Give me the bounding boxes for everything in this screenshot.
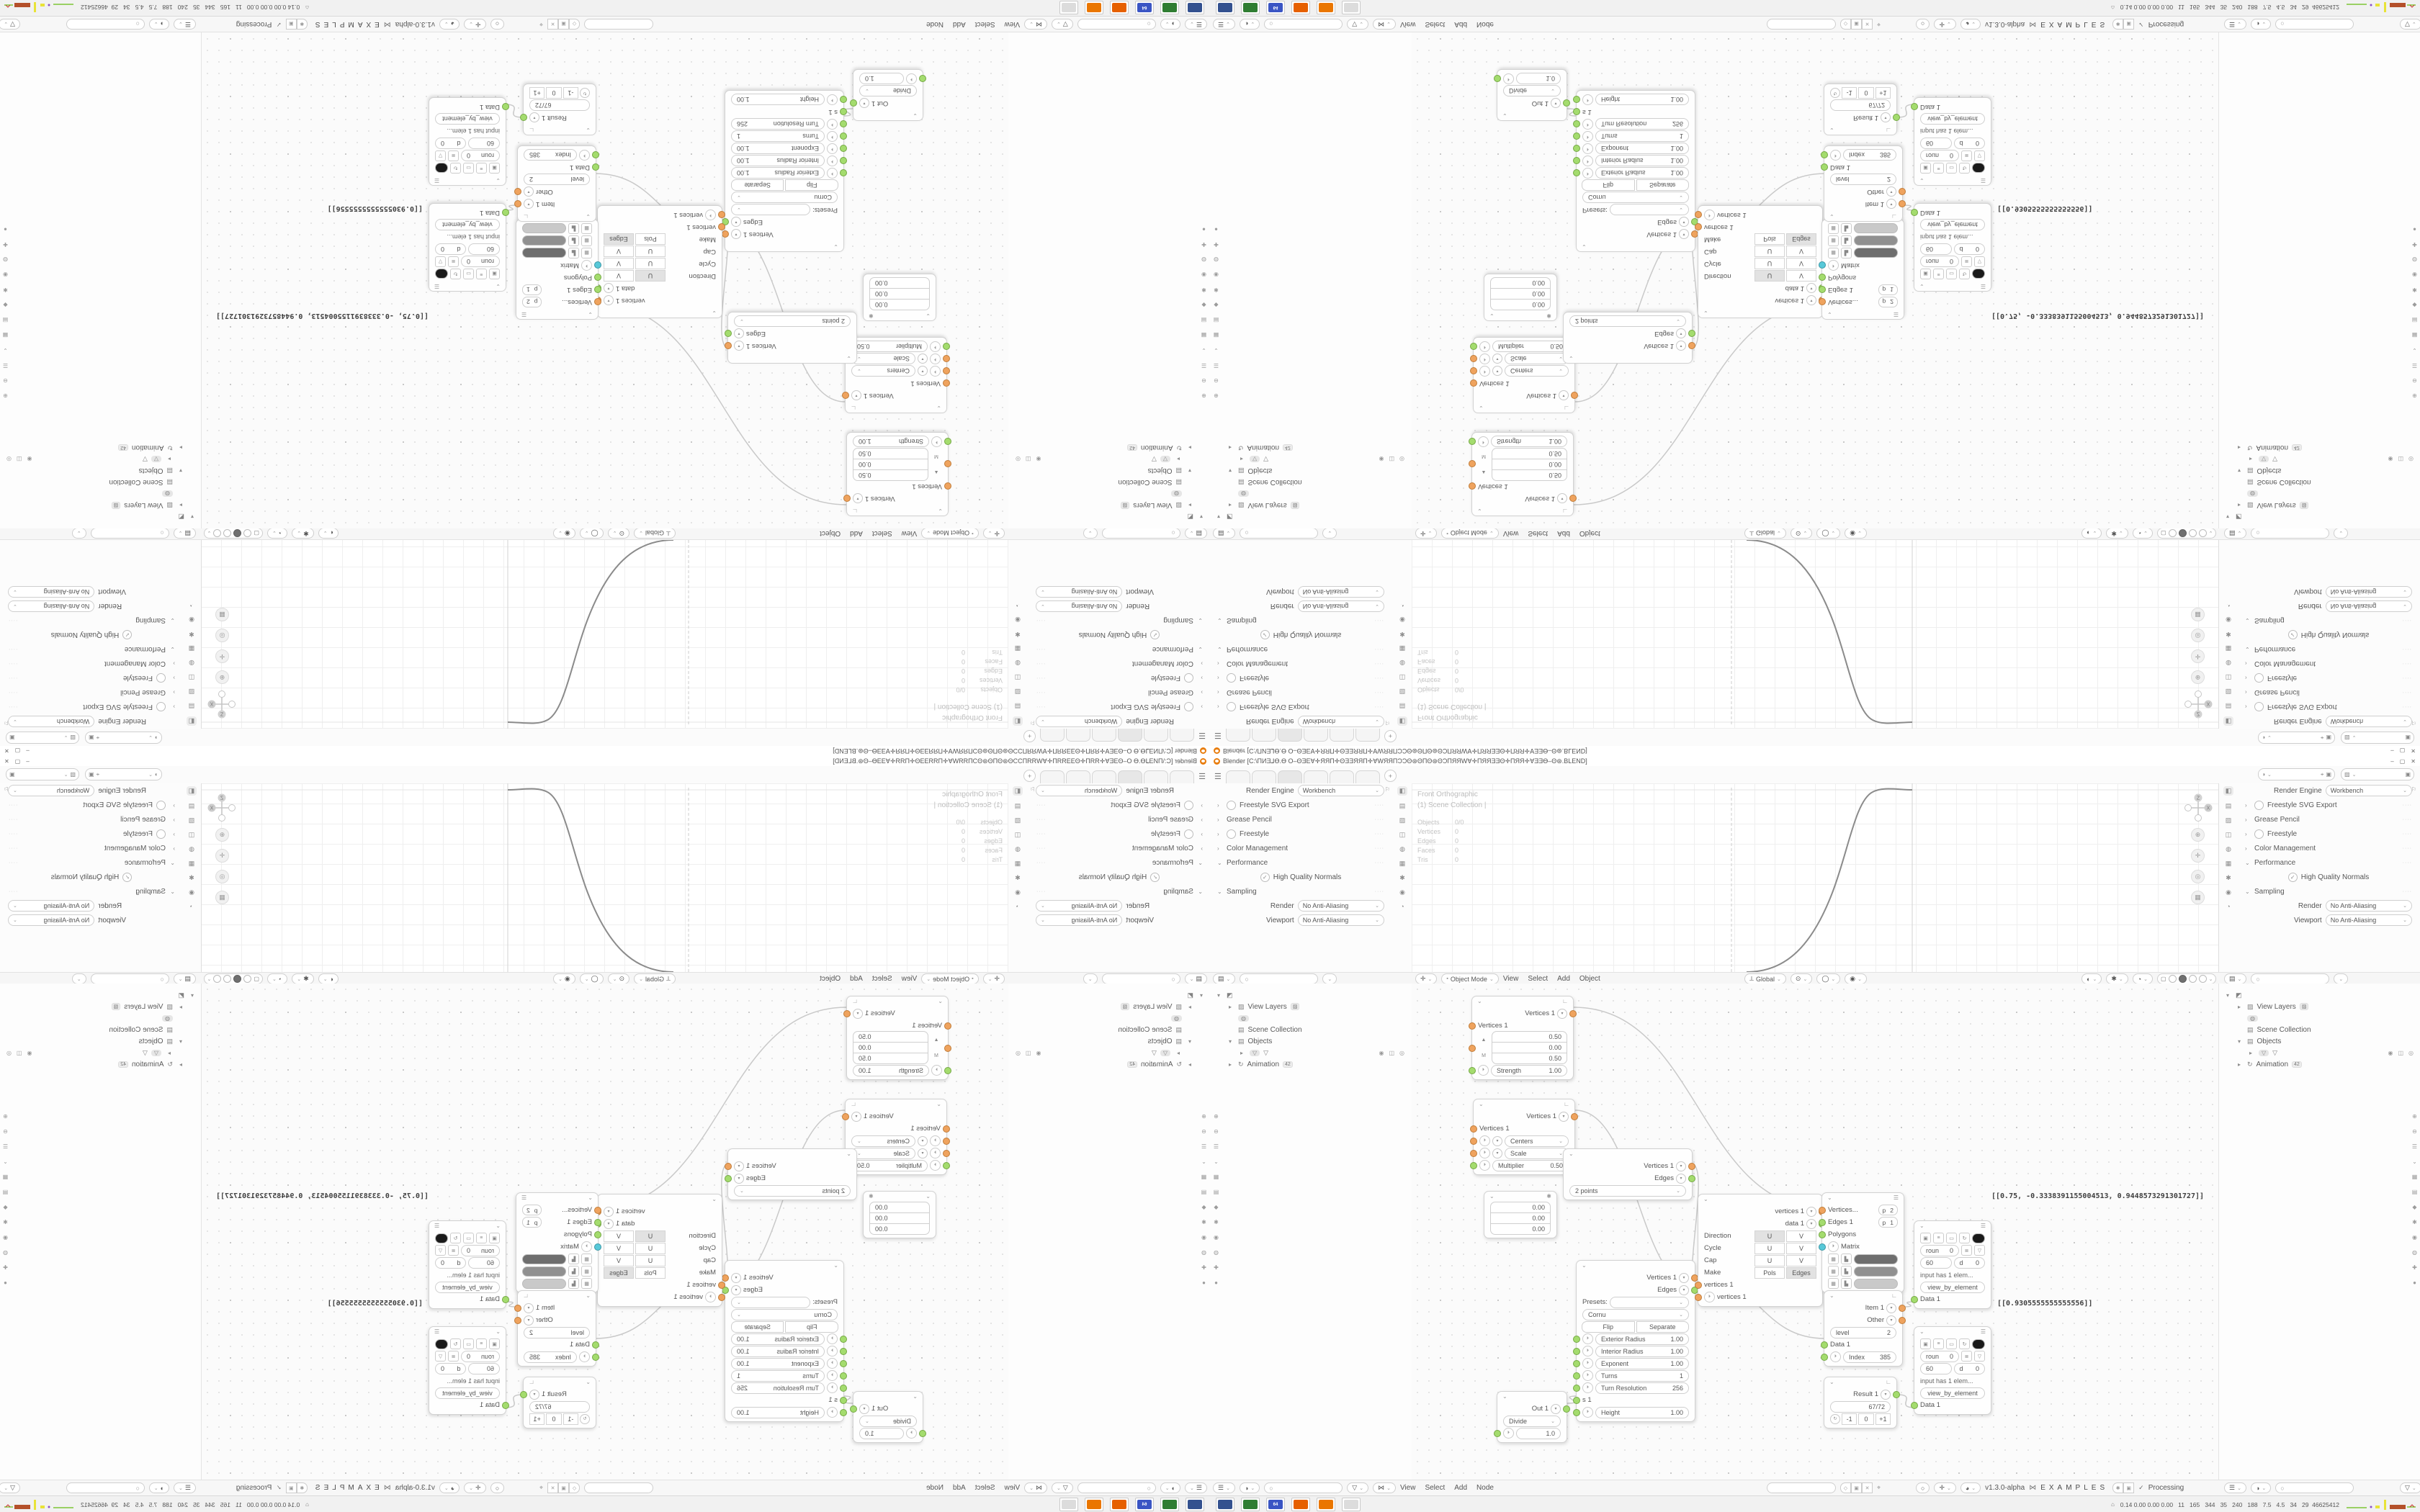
socket-menu-button[interactable]: ▾: [734, 1161, 744, 1171]
socket-options-button[interactable]: ⏵: [1582, 143, 1593, 154]
node-socket-vertices[interactable]: [1569, 495, 1577, 503]
side-tab-icon[interactable]: ●: [1202, 1279, 1206, 1286]
maximize-button[interactable]: ▢: [2400, 748, 2406, 755]
option-icon[interactable]: ▽: [1974, 256, 1985, 267]
node-socket-data[interactable]: [1573, 170, 1580, 177]
properties-search-input[interactable]: ○: [1102, 528, 1180, 539]
value-field[interactable]: 60: [1920, 1363, 1952, 1374]
node-socket-data[interactable]: [1470, 343, 1477, 351]
checkbox[interactable]: [1227, 829, 1236, 839]
viewport-3d[interactable]: Front Orthographic(1) Scene Collection |…: [202, 783, 1008, 972]
socket-options-button[interactable]: ⏵: [931, 436, 942, 447]
side-tab-icon[interactable]: ◍: [1201, 1249, 1206, 1256]
zoom-icon[interactable]: ⊕: [215, 670, 229, 684]
side-tab-icon[interactable]: ✚: [2412, 1264, 2417, 1271]
node-header[interactable]: ⌄∟: [518, 1291, 596, 1302]
outliner-id-filter-button[interactable]: ◑⌄: [1240, 19, 1260, 30]
pin-icon[interactable]: ⚐: [1030, 786, 1035, 793]
outliner-id-filter-button[interactable]: ◑⌄: [1160, 19, 1180, 30]
pivot-point-dropdown[interactable]: ⊙⌄: [608, 528, 629, 539]
vector-value-field[interactable]: 0.00: [869, 1202, 930, 1213]
scene-selector[interactable]: ◑⌄ ⌖ ▣: [2258, 768, 2335, 780]
value-field[interactable]: Interior Radius1.00: [1595, 1346, 1689, 1357]
copy-button[interactable]: ▣: [1851, 19, 1862, 30]
viewport-menu-view[interactable]: View: [1503, 529, 1519, 537]
value-field[interactable]: 67/72: [529, 100, 590, 112]
node-socket-data[interactable]: [1821, 164, 1828, 171]
node-socket-data[interactable]: [1819, 1219, 1826, 1226]
mode-dropdown[interactable]: ▪Object Mode⌄: [1441, 973, 1498, 984]
properties-panel-header[interactable]: ›Grease Pencil····: [1210, 812, 1391, 827]
display-toggle-icon[interactable]: ▣: [1920, 1233, 1931, 1243]
node-socket-data[interactable]: [1469, 1067, 1476, 1074]
collapse-chevron-icon[interactable]: ⌄: [833, 1262, 838, 1272]
pin-icon[interactable]: ⌖: [2321, 734, 2324, 742]
shading-material-button[interactable]: [223, 975, 231, 983]
properties-tab-icon[interactable]: ◧: [187, 786, 197, 796]
side-tab-icon[interactable]: ☰: [2412, 362, 2417, 369]
side-tab-icon[interactable]: ⌄: [1214, 1158, 1219, 1165]
workspace-tab[interactable]: [1170, 729, 1194, 742]
rounding-field[interactable]: roun0: [1920, 1245, 1959, 1256]
pin-icon[interactable]: ⌖: [1877, 20, 1881, 28]
side-tab-icon[interactable]: ⌄: [1201, 347, 1206, 354]
dropdown-field[interactable]: ⌄: [731, 204, 810, 216]
dropdown-field[interactable]: Cornu⌄: [1582, 1309, 1689, 1320]
socket-options-button[interactable]: ⏵: [705, 210, 716, 220]
table-cell[interactable]: Pols: [1754, 234, 1785, 246]
vector-fields[interactable]: 0.500.000.50: [853, 1032, 928, 1064]
toggle-grid-icon[interactable]: ▦: [215, 608, 229, 621]
socket-options-button[interactable]: ⏵: [581, 260, 592, 271]
collapse-chevron-icon[interactable]: ⌄: [1569, 1151, 1574, 1160]
math-divide-node[interactable]: ⌄Out 1▾Divide⌄⏵1.0: [853, 69, 923, 121]
outliner-row[interactable]: ▸▨View Layers▨: [2219, 500, 2420, 511]
outliner-row[interactable]: ▸▽▽◉◫◎: [1210, 454, 1412, 465]
socket-menu-button[interactable]: ▾: [1806, 284, 1816, 294]
properties-tab-icon[interactable]: ✱: [2226, 874, 2231, 882]
collapse-chevron-icon[interactable]: ⌄: [833, 240, 838, 250]
side-tab-icon[interactable]: ⌄: [3, 347, 8, 354]
collapse-chevron-icon[interactable]: ⌄: [1829, 124, 1834, 133]
uv-connection-node[interactable]: ⌄vertices 1▾data 1▾DirectionUVCycleUVCap…: [597, 205, 722, 318]
outliner-row[interactable]: ◍: [0, 488, 201, 500]
checkbox[interactable]: ✓: [122, 631, 132, 640]
side-tab-icon[interactable]: ●: [4, 226, 7, 233]
collapse-chevron-icon[interactable]: ⌄: [1919, 1223, 1924, 1232]
properties-tab-icon[interactable]: ◔: [1400, 602, 1404, 609]
node-editor-menu-node[interactable]: Node: [1476, 1484, 1494, 1492]
node-socket-vertices[interactable]: [1899, 201, 1906, 208]
node-socket-data[interactable]: [1494, 1430, 1501, 1437]
collapse-chevron-icon[interactable]: ⌄: [1502, 109, 1507, 119]
node-socket-data[interactable]: [1573, 1348, 1580, 1355]
socket-menu-button[interactable]: ▾: [1551, 99, 1561, 109]
node-editor-menu-select[interactable]: Select: [975, 1484, 995, 1492]
node-editor-menu-add[interactable]: Add: [1454, 1484, 1467, 1492]
table-cell[interactable]: U: [635, 246, 665, 258]
view-layer-name-field[interactable]: [2358, 734, 2403, 742]
outliner-row[interactable]: ◍: [2219, 488, 2420, 500]
value-field[interactable]: Strength1.00: [853, 1065, 929, 1076]
checkbox[interactable]: [1184, 801, 1193, 810]
properties-tab-icon[interactable]: ◉: [2226, 888, 2231, 896]
vertices-scale-node[interactable]: ⌄∟Vertices 1▾Vertices 1⏵▾Centers⌄⏵▾Scale…: [845, 1099, 947, 1175]
table-cell[interactable]: U: [635, 271, 665, 282]
viewport-3d[interactable]: Front Orthographic(1) Scene Collection |…: [202, 540, 1008, 729]
viewport-menu-add[interactable]: Add: [850, 975, 863, 983]
socket-menu-button[interactable]: ▾: [1886, 1315, 1896, 1326]
side-tab-icon[interactable]: ✱: [3, 287, 8, 293]
node-header[interactable]: ⌄: [728, 352, 856, 363]
side-tab-icon[interactable]: ▦: [1201, 1174, 1207, 1180]
table-cell[interactable]: U: [1754, 258, 1785, 270]
property-dropdown[interactable]: Workbench⌄: [8, 716, 94, 727]
node-socket-data[interactable]: [725, 1175, 732, 1182]
option-icon[interactable]: ▽: [435, 1245, 446, 1256]
main-menu-icon[interactable]: ☰: [1198, 772, 1206, 781]
outliner-row[interactable]: ▾▤Objects: [0, 465, 201, 477]
side-tab-icon[interactable]: ☰: [1214, 362, 1219, 369]
node-socket-data[interactable]: [1573, 96, 1580, 104]
properties-tab-icon[interactable]: ▦: [1399, 860, 1406, 868]
main-menu-icon[interactable]: ☰: [1214, 772, 1222, 781]
text-color-swatch[interactable]: [1972, 163, 1985, 174]
properties-panel-header[interactable]: ›Freestyle····: [1, 827, 182, 841]
properties-tab-icon[interactable]: ◍: [189, 659, 194, 667]
node-editor-menu-view[interactable]: View: [1005, 1484, 1021, 1492]
viewport-menu-object[interactable]: Object: [1579, 529, 1600, 537]
dropdown-field[interactable]: Cornu⌄: [731, 1309, 838, 1320]
checkbox[interactable]: [1184, 703, 1193, 712]
side-tab-icon[interactable]: ▤: [2412, 1189, 2418, 1195]
outliner-row[interactable]: ▤Scene Collection: [2219, 477, 2420, 488]
socket-menu-button[interactable]: ▾: [1559, 391, 1569, 401]
collapse-chevron-icon[interactable]: ⌄: [1829, 1292, 1834, 1302]
vector-fields[interactable]: 0.500.000.50: [1492, 448, 1567, 480]
outliner-filter-button[interactable]: ☰⌄: [1213, 19, 1235, 30]
outliner-row[interactable]: ▸▽▽◉◫◎: [0, 454, 201, 465]
node-editor-menu-view[interactable]: View: [1005, 20, 1021, 28]
outliner-row[interactable]: ▸▽▽◉◫◎: [1008, 454, 1210, 465]
property-dropdown[interactable]: No Anti-Aliasing⌄: [2326, 914, 2412, 926]
stethoscope-node-a[interactable]: ⌄☰▣≡▭↻roun0≣▽60d0input has 1 elem...view…: [1914, 1220, 1991, 1309]
property-dropdown[interactable]: No Anti-Aliasing⌄: [8, 900, 94, 912]
properties-tab-icon[interactable]: ▦: [189, 860, 195, 868]
value-field[interactable]: d0: [435, 244, 467, 256]
properties-panel-header[interactable]: ›Color Management····: [1028, 657, 1210, 671]
dropdown-field[interactable]: Scale⌄: [851, 1148, 915, 1159]
view-layer-selector[interactable]: ▨⌄ ▣: [2341, 732, 2414, 744]
node-socket-vertices[interactable]: [1469, 461, 1476, 468]
side-tab-icon[interactable]: ⊖: [1201, 1128, 1206, 1135]
viewport-menu-add[interactable]: Add: [1557, 529, 1570, 537]
socket-options-button[interactable]: ⏵: [1479, 354, 1490, 364]
properties-panel-header[interactable]: ⌄Performance····: [1, 855, 182, 870]
outliner-row[interactable]: ▾▤Objects: [2219, 465, 2420, 477]
display-toggle-icon[interactable]: ▦: [1828, 235, 1839, 246]
update-tree-button[interactable]: ✱: [2112, 1482, 2123, 1493]
table-cell[interactable]: V: [604, 271, 634, 282]
socket-menu-button[interactable]: ▾: [1679, 1273, 1689, 1283]
outliner-row[interactable]: ▾◩: [1008, 989, 1210, 1001]
pin-icon[interactable]: ⌖: [2321, 771, 2324, 778]
socket-options-button[interactable]: ⏵: [1704, 1292, 1715, 1302]
node-editor[interactable]: ⌄∟Vertices 1▾Vertices 1▲M0.500.000.50⏵St…: [202, 984, 1008, 1480]
value-field[interactable]: Index385: [524, 1351, 577, 1363]
collapse-chevron-icon[interactable]: ⌄: [1703, 307, 1708, 316]
outliner-row[interactable]: ▸↻Animation42: [1210, 442, 1412, 454]
properties-panel-header[interactable]: ›Color Management····: [1, 841, 182, 855]
node-header[interactable]: ⌄∟: [524, 1377, 596, 1388]
disable-render-icon[interactable]: ◎: [1399, 456, 1404, 463]
node-header[interactable]: ⌄∟: [846, 1099, 946, 1110]
show-overlays-button[interactable]: ✱⌄: [292, 528, 313, 539]
node-socket-vertices[interactable]: [943, 1150, 950, 1157]
socket-tag[interactable]: p1: [522, 1217, 542, 1228]
counter-button[interactable]: 0: [546, 1413, 561, 1425]
properties-tab-icon[interactable]: ◧: [2223, 716, 2234, 726]
outliner-search-input[interactable]: ○: [1264, 1482, 1343, 1493]
option-icon[interactable]: ▽: [435, 1351, 446, 1362]
value-field[interactable]: 1.0: [1516, 73, 1561, 85]
socket-options-button[interactable]: ⏵: [1582, 1370, 1593, 1381]
node-header[interactable]: ⌄☰: [1822, 308, 1904, 319]
vector-value-field[interactable]: 0.00: [853, 459, 928, 470]
node-socket-data[interactable]: [1573, 1372, 1580, 1380]
property-dropdown[interactable]: No Anti-Aliasing⌄: [1036, 600, 1122, 612]
outliner-row[interactable]: ▤Scene Collection: [0, 477, 201, 488]
disable-render-icon[interactable]: ◎: [1016, 1050, 1021, 1056]
collapse-chevron-icon[interactable]: ⌄: [1489, 1193, 1494, 1202]
vector-input-node[interactable]: ⌄✱0.000.000.00: [863, 1191, 936, 1238]
properties-options-button[interactable]: ⌄: [72, 528, 86, 539]
checkbox[interactable]: [156, 829, 166, 839]
outliner-row[interactable]: ▾▤Objects: [0, 1035, 201, 1047]
node-socket-data[interactable]: [1573, 145, 1580, 153]
node-socket-data[interactable]: [1573, 133, 1580, 140]
node-socket-vertices[interactable]: [944, 483, 951, 490]
workspace-tab[interactable]: [1278, 770, 1302, 783]
node-socket-data[interactable]: [840, 145, 847, 153]
outliner-row[interactable]: ▤Scene Collection: [1210, 1024, 1412, 1035]
socket-menu-button[interactable]: ▾: [1679, 1285, 1689, 1295]
mode-button[interactable]: ▾: [1492, 1148, 1502, 1158]
properties-tab-icon[interactable]: ▤: [1399, 702, 1406, 710]
socket-menu-button[interactable]: ▾: [734, 1174, 744, 1184]
workspace-tab[interactable]: [1040, 729, 1065, 742]
properties-panel-header[interactable]: ⌄Performance····: [2238, 642, 2419, 657]
side-tab-icon[interactable]: ▦: [1214, 1174, 1219, 1180]
socket-menu-button[interactable]: ▾: [731, 217, 741, 228]
checkbox[interactable]: [2254, 674, 2264, 683]
filter-funnel-icon[interactable]: ▽: [1160, 1050, 1170, 1056]
properties-tab-icon[interactable]: ◉: [189, 888, 194, 896]
display-toggle-icon[interactable]: ▭: [463, 269, 474, 279]
value-field[interactable]: d0: [435, 138, 467, 150]
vector-value-field[interactable]: 0.50: [1492, 448, 1567, 459]
properties-tab-icon[interactable]: ▦: [189, 644, 195, 652]
option-icon[interactable]: ≣: [1961, 1351, 1972, 1362]
side-tab-icon[interactable]: ⊖: [3, 377, 8, 384]
collapse-chevron-icon[interactable]: ⌄: [1703, 1196, 1708, 1205]
socket-options-button[interactable]: ⏵: [705, 1292, 716, 1302]
value-field[interactable]: Index385: [524, 150, 577, 161]
show-overlays-button[interactable]: ✱⌄: [292, 973, 313, 984]
properties-tab-icon[interactable]: ✱: [1015, 874, 1021, 882]
vertices-noise-node[interactable]: ⌄∟Vertices 1▾Vertices 1▲M0.500.000.50⏵St…: [846, 996, 949, 1080]
node-socket-vertices[interactable]: [1469, 1022, 1476, 1030]
loop-icon[interactable]: ↻: [1830, 1414, 1840, 1424]
node-socket-vertices[interactable]: [842, 1113, 849, 1120]
value-field[interactable]: Multiplier0.50: [851, 1160, 928, 1171]
shading-wireframe-button[interactable]: [243, 529, 251, 537]
properties-options-button[interactable]: ⌄: [1322, 528, 1337, 539]
socket-menu-button[interactable]: ▾: [1676, 329, 1686, 339]
pin-icon[interactable]: ⚐: [2411, 786, 2416, 793]
socket-menu-button[interactable]: ▾: [1676, 341, 1686, 351]
node-socket-vertices[interactable]: [725, 1163, 732, 1170]
socket-menu-button[interactable]: ▾: [1557, 494, 1567, 504]
hide-eye-icon[interactable]: ◉: [2388, 1050, 2393, 1056]
option-icon[interactable]: ≣: [1961, 1245, 1972, 1256]
socket-options-button[interactable]: ⏵: [1582, 1407, 1593, 1418]
checkbox[interactable]: [1227, 801, 1236, 810]
socket-menu-button[interactable]: ▾: [734, 329, 744, 339]
socket-menu-button[interactable]: ▾: [1679, 217, 1689, 228]
properties-panel-header[interactable]: ›Freestyle····: [1028, 671, 1210, 685]
node-header[interactable]: ⌄✱: [1484, 1192, 1556, 1202]
color-swatch[interactable]: [522, 236, 566, 246]
outliner-row[interactable]: ▾◩: [1210, 989, 1412, 1001]
outliner-row[interactable]: ▸▽▽◉◫◎: [1210, 1047, 1412, 1058]
color-swatch[interactable]: [522, 1279, 566, 1289]
display-toggle-icon[interactable]: ↻: [1959, 1338, 1970, 1349]
side-tab-icon[interactable]: ✱: [1214, 1219, 1219, 1225]
display-toggle-icon[interactable]: ▦: [1828, 1266, 1839, 1277]
toggle-option[interactable]: Separate: [1636, 180, 1690, 192]
display-toggle-icon[interactable]: ▣: [1920, 1338, 1931, 1349]
display-toggle-icon[interactable]: ▙: [568, 1254, 579, 1264]
blender-app-icon[interactable]: [1317, 1, 1335, 14]
dropdown-field[interactable]: Scale⌄: [851, 354, 915, 365]
value-field[interactable]: Exterior Radius1.00: [1595, 1333, 1689, 1345]
collapse-chevron-icon[interactable]: ⌄: [496, 174, 501, 184]
display-toggle-icon[interactable]: ▦: [1828, 1254, 1839, 1264]
properties-filter-button[interactable]: ▤⌄: [174, 973, 196, 984]
side-tab-icon[interactable]: ⊖: [1201, 377, 1206, 384]
close-button[interactable]: ✕: [4, 758, 9, 765]
node-header[interactable]: ⌄: [1497, 1392, 1567, 1403]
vector-fields[interactable]: 0.500.000.50: [853, 448, 928, 480]
collapse-chevron-icon[interactable]: ⌄: [712, 307, 717, 316]
overlay-dropdown[interactable]: ◕⌄: [1960, 19, 1981, 30]
node-socket-data[interactable]: [840, 1409, 847, 1416]
node-socket-vertices[interactable]: [514, 1305, 521, 1312]
side-tab-icon[interactable]: ◍: [1214, 1249, 1219, 1256]
socket-options-button[interactable]: ⏵: [1503, 73, 1514, 84]
workspace-tab[interactable]: [1092, 770, 1116, 783]
side-tab-icon[interactable]: ✱: [2412, 1219, 2417, 1225]
side-tab-icon[interactable]: ◆: [1201, 302, 1206, 308]
outliner-row[interactable]: ▾◩: [1210, 511, 1412, 523]
socket-options-button[interactable]: ⏵: [827, 143, 838, 154]
node-socket-data[interactable]: [840, 1385, 847, 1392]
property-dropdown[interactable]: No Anti-Aliasing⌄: [8, 914, 94, 926]
mode-dropdown[interactable]: ▪Object Mode⌄: [921, 528, 978, 539]
properties-tab-icon[interactable]: ◧: [2223, 786, 2234, 796]
color-swatch[interactable]: [522, 248, 566, 258]
collapse-chevron-icon[interactable]: ⌄: [846, 352, 851, 361]
toggle-option[interactable]: Separate: [731, 180, 784, 192]
value-field[interactable]: Exterior Radius1.00: [731, 1333, 825, 1345]
counter-node[interactable]: ⌄∟Result 1▾67/72↻-10+1: [1824, 1377, 1897, 1428]
notepad-icon[interactable]: [1059, 1, 1078, 14]
outliner-row[interactable]: ▤Scene Collection: [1210, 477, 1412, 488]
unlink-button[interactable]: ✕: [1862, 1482, 1873, 1493]
socket-menu-button[interactable]: ▾: [529, 1390, 539, 1400]
workspace-tab[interactable]: [1144, 729, 1168, 742]
outliner-row[interactable]: ▾◩: [2219, 511, 2420, 523]
side-tab-icon[interactable]: ✚: [1201, 241, 1206, 248]
pin-icon[interactable]: ⌖: [97, 771, 100, 778]
side-tab-icon[interactable]: ◆: [2412, 1204, 2416, 1210]
side-tab-icon[interactable]: ▤: [1201, 1189, 1207, 1195]
node-socket-data[interactable]: [840, 170, 847, 177]
maximize-button[interactable]: ▢: [15, 758, 21, 765]
node-header[interactable]: ⌄∟: [1472, 996, 1573, 1007]
add-workspace-button[interactable]: +: [1023, 770, 1036, 782]
node-socket-vertices[interactable]: [843, 495, 851, 503]
node-socket-vertices[interactable]: [1688, 343, 1695, 350]
value-field[interactable]: 60: [469, 138, 501, 150]
checkbox[interactable]: [1227, 674, 1236, 683]
node-socket-vertices[interactable]: [1695, 224, 1702, 231]
value-field[interactable]: Turns1: [1595, 1370, 1689, 1382]
color-swatch[interactable]: [1854, 236, 1898, 246]
properties-tab-icon[interactable]: ◔: [2226, 602, 2230, 609]
view-layer-selector[interactable]: ▨⌄ ▣: [6, 768, 79, 780]
socket-options-button[interactable]: ⏵: [1582, 119, 1593, 130]
file-manager-icon[interactable]: [1186, 1, 1204, 14]
pin-icon[interactable]: ⚐: [4, 719, 9, 726]
viewport-3d[interactable]: Front Orthographic(1) Scene Collection |…: [1412, 783, 2218, 972]
node-socket-vertices[interactable]: [1470, 368, 1477, 375]
disable-render-icon[interactable]: ◎: [6, 456, 12, 463]
socket-options-button[interactable]: ⏵: [1582, 1346, 1593, 1356]
properties-tab-icon[interactable]: ◉: [1399, 616, 1405, 624]
collapse-chevron-icon[interactable]: ⌄: [1479, 1101, 1484, 1110]
node-socket-vertices[interactable]: [944, 1022, 951, 1030]
scene-selector[interactable]: ◑⌄ ⌖ ▣: [85, 768, 162, 780]
properties-panel-header[interactable]: ⌄Performance····: [1, 642, 182, 657]
node-editor-menu-add[interactable]: Add: [953, 20, 966, 28]
socket-tag[interactable]: p1: [522, 284, 542, 295]
socket-menu-button[interactable]: ▾: [851, 391, 861, 401]
property-dropdown[interactable]: No Anti-Aliasing⌄: [1036, 914, 1122, 926]
shading-rendered-button[interactable]: [213, 975, 221, 983]
proportional-editing-dropdown[interactable]: ◉⌄: [1845, 528, 1867, 539]
node-socket-data[interactable]: [502, 1296, 509, 1303]
checkbox[interactable]: [1227, 703, 1236, 712]
node-socket-vertices[interactable]: [594, 1207, 601, 1214]
properties-tab-icon[interactable]: ◧: [1013, 786, 1023, 796]
hide-eye-icon[interactable]: ◉: [1036, 1050, 1041, 1056]
outliner-row[interactable]: ◍: [1210, 1012, 1412, 1024]
collapse-chevron-icon[interactable]: ⌄: [496, 1328, 501, 1338]
property-dropdown[interactable]: No Anti-Aliasing⌄: [1036, 900, 1122, 912]
socket-menu-button[interactable]: ▾: [524, 1303, 534, 1313]
